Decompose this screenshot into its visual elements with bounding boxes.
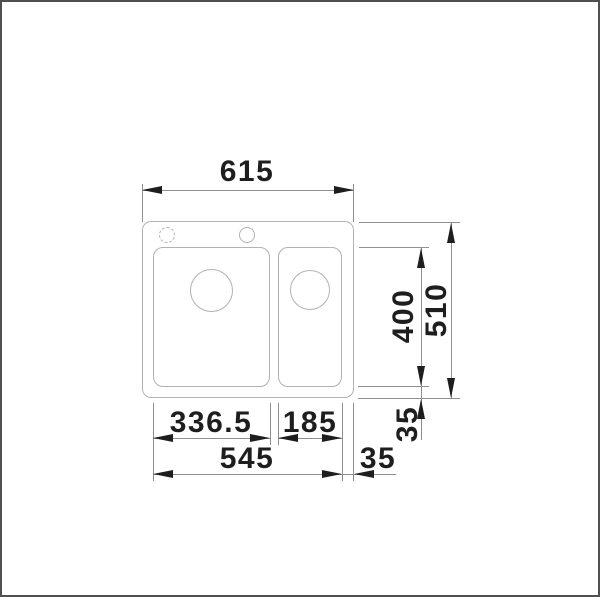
main-bowl-drain [190,269,233,312]
dim-line-615 [142,190,354,191]
dim-label-bowl-depth: 400 [389,256,419,376]
dim-label-overall-depth: 510 [422,250,452,370]
arrowhead-left-icon [142,186,162,194]
drawing-canvas: 615 400 510 35 336.5 185 545 35 [0,0,600,600]
arrowhead-left-icon [153,470,173,478]
dim-label-half-bowl-width: 185 [250,408,370,438]
arrowhead-right-icon [334,186,354,194]
half-bowl [278,247,342,387]
arrowhead-up-icon [447,223,455,243]
main-bowl [153,247,270,387]
arrowhead-right-icon [322,470,342,478]
tap-hole-optional [159,227,175,243]
tap-hole [239,227,255,243]
dim-label-overall-width: 615 [187,157,307,187]
dim-label-bowls-total-width: 545 [187,444,307,474]
extension-line-sink-top [359,222,460,223]
arrowhead-down-icon [447,378,455,398]
extension-line-bowl-bottom [358,386,429,387]
half-bowl-drain [290,270,330,310]
dim-label-side-offset: 35 [348,444,408,474]
